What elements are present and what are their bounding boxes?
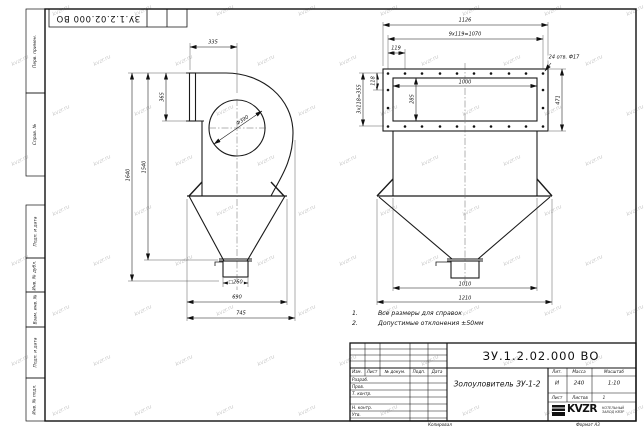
tb-sheet-label: Лист [552, 395, 563, 399]
dim-335: 335 [207, 41, 219, 46]
tb-col-podp: Подп. [413, 370, 426, 374]
note-1-text: Все размеры для справок [378, 311, 462, 317]
dim-745: 745 [235, 312, 247, 317]
tb-row-nkontr: Н. контр. [352, 405, 372, 409]
tb-col-dokum: № докум. [385, 370, 406, 374]
tb-sheets-value: 1 [603, 395, 606, 399]
copied-label: Копировал [428, 423, 452, 427]
tb-mass-value: 240 [574, 381, 585, 387]
dim-1540: 1540 [143, 160, 148, 175]
tb-scale-label: Масштаб [604, 370, 624, 374]
dim-285: 285 [411, 93, 416, 105]
sidebar-label-podp-data-1: Подп. и дата [26, 205, 45, 258]
sidebar-label-podp-data-2: Подп. и дата [26, 327, 45, 378]
title-doc-number: ЗУ.1.2.02.000 ВО [483, 349, 600, 363]
dim-1010: 1010 [458, 283, 473, 288]
tb-sheets-label: Листов [572, 395, 588, 399]
tb-row-prov: Пров. [352, 384, 364, 388]
top-stamp-number: ЗУ.1.2.02.000 ВО [49, 9, 147, 27]
format-label: Формат А3 [576, 423, 600, 427]
sidebar-label-perv-primen: Перв. примен. [26, 9, 45, 93]
tb-col-izm: Изм. [352, 370, 362, 374]
dim-260: □260 [227, 281, 243, 286]
kvzr-logo-subtitle-line2: ЗАВОД КВЗР [602, 410, 624, 414]
title-part-name: Золоуловитель ЗУ-1-2 [454, 380, 541, 389]
tb-lit-label: Лит. [552, 370, 562, 374]
tb-col-data: Дата [432, 370, 443, 374]
sidebar-label-vzam-inv: Взам. инв. № [26, 292, 45, 327]
dim-119: 119 [390, 47, 402, 52]
kvzr-logo-icon [552, 405, 565, 416]
tb-row-utv: Утв. [352, 412, 361, 416]
drawing-linework [0, 0, 644, 430]
dim-690: 690 [231, 296, 243, 301]
drawing-sheet: kvzr.rukvzr.rukvzr.rukvzr.rukvzr.rukvzr.… [0, 0, 644, 430]
kvzr-logo-subtitle: КОТЕЛЬНЫЙ ЗАВОД КВЗР [602, 406, 624, 415]
tb-row-razrab: Разраб. [352, 377, 368, 381]
kvzr-logo-text: KVZR [567, 403, 597, 415]
dim-1640: 1640 [127, 168, 132, 183]
dim-471: 471 [557, 94, 562, 106]
note-2-text: Допустимые отклонения ±50мм [378, 321, 484, 327]
dim-holes-note: 24 отв. Ф17 [548, 56, 581, 61]
dim-1126: 1126 [458, 19, 473, 24]
front-view [377, 69, 552, 278]
dim-1070: 9x119=1070 [448, 33, 483, 38]
dim-1210: 1210 [458, 297, 473, 302]
tb-lit-value: И [555, 381, 559, 387]
tb-col-list: Лист [367, 370, 378, 374]
tb-scale-value: 1:10 [608, 381, 620, 387]
side-view [186, 73, 293, 277]
tb-row-tkontr: Т. контр. [352, 391, 371, 395]
sidebar-label-sprav-no: Справ. № [26, 93, 45, 176]
dim-365: 365 [161, 91, 166, 103]
dim-355: 3x118=355 [358, 83, 363, 114]
note-2-number: 2. [352, 321, 358, 327]
sidebar-label-inv-podl: Инв. № подл. [26, 378, 45, 421]
dim-1000: 1000 [458, 81, 473, 86]
tb-mass-label: Масса [572, 370, 585, 374]
note-1-number: 1. [352, 311, 358, 317]
sidebar-label-inv-dubl: Инв. № дубл. [26, 258, 45, 292]
extension-lines [128, 22, 566, 321]
dim-118: 118 [372, 75, 377, 87]
